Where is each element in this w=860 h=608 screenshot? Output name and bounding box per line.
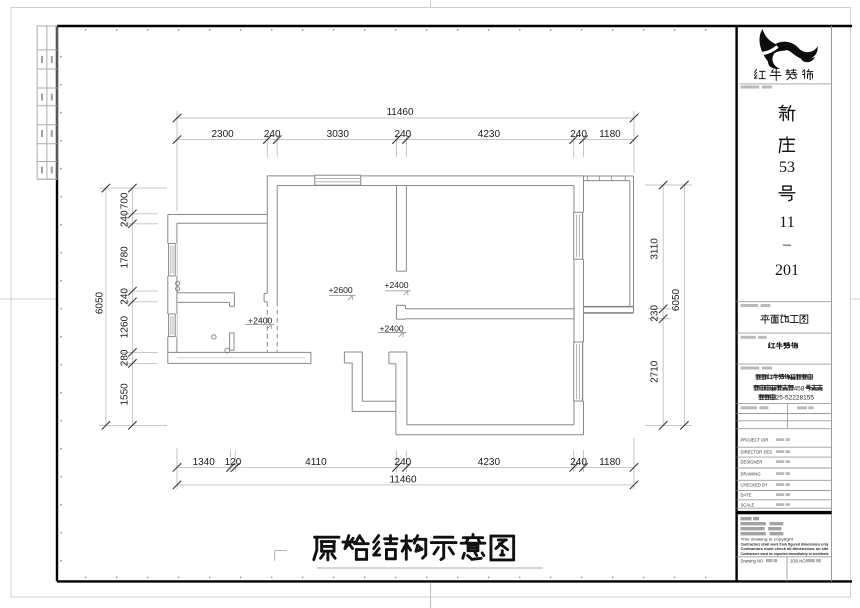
- svg-text:230: 230: [650, 305, 661, 322]
- svg-text:DRAWING: DRAWING: [741, 472, 761, 477]
- svg-text:JOB NO: JOB NO: [790, 559, 806, 564]
- svg-text:240: 240: [119, 288, 130, 305]
- svg-text:1180: 1180: [599, 457, 621, 468]
- svg-text:4230: 4230: [478, 457, 501, 468]
- svg-text:700: 700: [119, 192, 130, 209]
- svg-text:3110: 3110: [650, 238, 661, 260]
- svg-text:DIRECTOR DES: DIRECTOR DES: [741, 450, 773, 455]
- svg-text:DATE: DATE: [741, 493, 752, 498]
- svg-text:11460: 11460: [389, 474, 417, 485]
- svg-text:2300: 2300: [211, 129, 234, 140]
- svg-text:+2400: +2400: [248, 315, 272, 325]
- svg-text:DESIGNER: DESIGNER: [741, 460, 763, 465]
- svg-text:1550: 1550: [119, 383, 130, 406]
- svg-text:11: 11: [779, 214, 794, 231]
- svg-text:SCALE: SCALE: [741, 503, 755, 508]
- svg-text:6050: 6050: [94, 291, 105, 314]
- svg-text:3030: 3030: [327, 129, 350, 140]
- svg-text:53: 53: [779, 159, 795, 176]
- svg-text:120: 120: [225, 457, 242, 468]
- svg-text:240: 240: [395, 457, 412, 468]
- svg-text:201: 201: [775, 262, 799, 279]
- svg-text:4230: 4230: [478, 129, 501, 140]
- svg-text:CHECKED BY: CHECKED BY: [741, 483, 768, 488]
- svg-text:+2400: +2400: [380, 323, 404, 333]
- svg-text:4110: 4110: [305, 457, 327, 468]
- svg-text:2710: 2710: [650, 360, 661, 383]
- svg-text:240: 240: [264, 129, 281, 140]
- svg-text:240: 240: [119, 210, 130, 227]
- svg-text:280: 280: [119, 349, 130, 366]
- svg-text:PROJECT DIR: PROJECT DIR: [741, 438, 769, 443]
- svg-text:240: 240: [570, 457, 587, 468]
- svg-text:+2400: +2400: [384, 280, 408, 290]
- svg-text:240: 240: [395, 129, 412, 140]
- svg-text:–: –: [782, 236, 792, 253]
- svg-text:458: 458: [794, 385, 805, 392]
- svg-text:1780: 1780: [119, 246, 130, 269]
- svg-text:240: 240: [570, 129, 587, 140]
- svg-text:1260: 1260: [119, 316, 130, 339]
- svg-text:+2600: +2600: [329, 285, 353, 295]
- svg-text:Drawing NO: Drawing NO: [741, 559, 765, 564]
- svg-text:6050: 6050: [671, 288, 682, 311]
- svg-text:Contractors must be reported i: Contractors must be reported immediately…: [741, 551, 830, 556]
- svg-text:025-52228155: 025-52228155: [772, 395, 814, 402]
- svg-text:1180: 1180: [599, 129, 621, 140]
- svg-text:11460: 11460: [386, 107, 414, 118]
- svg-text:1340: 1340: [193, 457, 216, 468]
